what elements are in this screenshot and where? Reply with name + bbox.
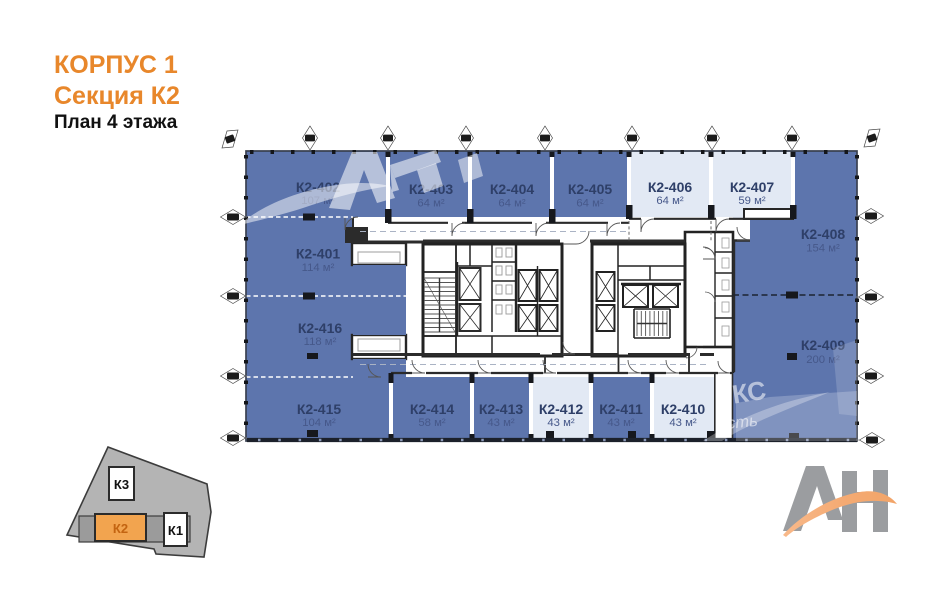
svg-text:64 м²: 64 м² bbox=[656, 195, 683, 207]
svg-text:58 м²: 58 м² bbox=[418, 417, 445, 429]
svg-text:К3: К3 bbox=[114, 477, 129, 492]
svg-text:К2-413: К2-413 bbox=[479, 401, 524, 417]
svg-text:59 м²: 59 м² bbox=[738, 195, 765, 207]
svg-text:43 м²: 43 м² bbox=[487, 417, 514, 429]
svg-text:План 4 этажа: План 4 этажа bbox=[54, 112, 178, 133]
svg-text:43 м²: 43 м² bbox=[669, 417, 696, 429]
svg-text:64 м²: 64 м² bbox=[498, 198, 525, 210]
svg-text:64 м²: 64 м² bbox=[576, 198, 603, 210]
svg-text:К2-407: К2-407 bbox=[730, 179, 775, 195]
svg-text:КС: КС bbox=[730, 375, 768, 410]
svg-text:К2-412: К2-412 bbox=[539, 401, 584, 417]
svg-text:К2-405: К2-405 bbox=[568, 181, 613, 197]
svg-text:104 м²: 104 м² bbox=[302, 417, 336, 429]
svg-text:К2-415: К2-415 bbox=[297, 401, 342, 417]
svg-text:К2-406: К2-406 bbox=[648, 179, 693, 195]
svg-text:154 м²: 154 м² bbox=[806, 243, 840, 255]
svg-text:К2-410: К2-410 bbox=[661, 401, 706, 417]
svg-text:64 м²: 64 м² bbox=[417, 198, 444, 210]
svg-text:43 м²: 43 м² bbox=[607, 417, 634, 429]
svg-text:43 м²: 43 м² bbox=[547, 417, 574, 429]
svg-text:Секция К2: Секция К2 bbox=[54, 82, 180, 110]
svg-text:К1: К1 bbox=[168, 523, 183, 538]
svg-text:К2-416: К2-416 bbox=[298, 320, 343, 336]
svg-text:К2-414: К2-414 bbox=[410, 401, 455, 417]
svg-text:К2-411: К2-411 bbox=[599, 401, 643, 417]
svg-text:К2: К2 bbox=[113, 521, 128, 536]
svg-text:К2-401: К2-401 bbox=[296, 246, 341, 262]
svg-text:118 м²: 118 м² bbox=[304, 336, 337, 348]
svg-text:КОРПУС 1: КОРПУС 1 bbox=[54, 51, 178, 79]
svg-text:114 м²: 114 м² bbox=[302, 262, 335, 274]
svg-text:К2-408: К2-408 bbox=[801, 226, 846, 242]
svg-text:К2-404: К2-404 bbox=[490, 181, 535, 197]
